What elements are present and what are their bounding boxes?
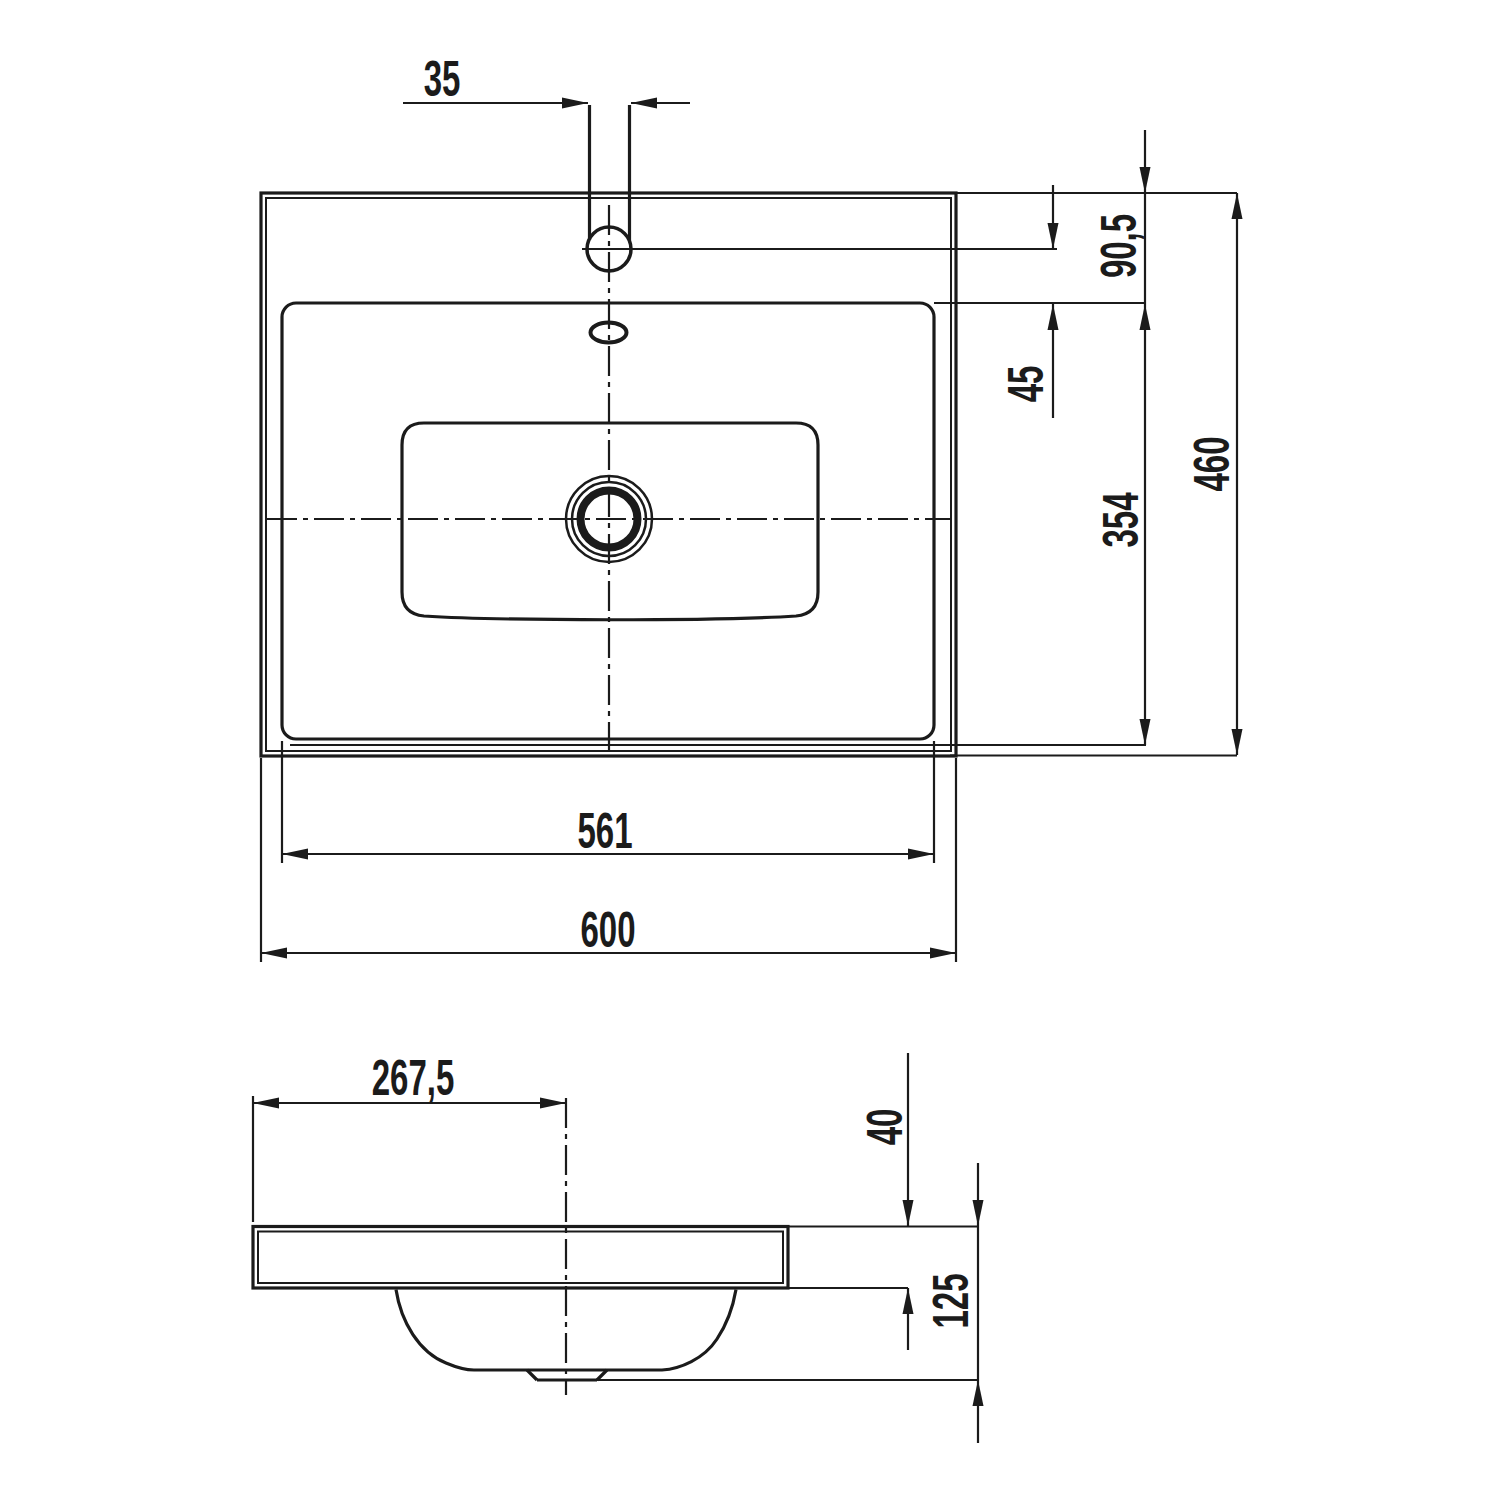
dim-label-edge-to-basin: 90,5 xyxy=(1091,214,1146,278)
slab-inner-outline xyxy=(258,1232,783,1284)
arrow-up-icon xyxy=(1232,193,1243,219)
dimension-90-5-and-354: 90,5 354 xyxy=(1091,130,1151,745)
dim-label-basin-width: 561 xyxy=(577,803,632,858)
arrow-right-icon xyxy=(562,98,588,109)
arrow-left-icon xyxy=(261,948,287,959)
washbasin-technical-drawing: 35 45 90,5 354 460 561 600 xyxy=(0,0,1500,1500)
arrow-up-icon xyxy=(1048,304,1059,330)
drawing-canvas: 35 45 90,5 354 460 561 600 xyxy=(0,0,1500,1500)
dimension-40: 40 xyxy=(857,1053,914,1350)
arrow-right-icon xyxy=(540,1098,566,1109)
dimension-35: 35 xyxy=(403,51,690,109)
dim-label-overall-width: 600 xyxy=(580,902,635,957)
arrow-down-icon xyxy=(903,1200,914,1226)
dim-label-basin-depth: 354 xyxy=(1093,492,1148,547)
dim-label-overall-depth: 460 xyxy=(1184,436,1239,491)
dimension-460: 460 xyxy=(1184,193,1243,755)
arrow-down-icon xyxy=(1232,729,1243,755)
arrow-down-icon xyxy=(973,1200,984,1226)
arrow-up-icon xyxy=(903,1288,914,1314)
slab-outer-outline xyxy=(253,1227,788,1289)
dim-label-bowl-depth: 125 xyxy=(923,1273,978,1328)
arrow-left-icon xyxy=(282,849,308,860)
dimension-600: 600 xyxy=(261,758,956,962)
arrow-down-icon xyxy=(1048,223,1059,249)
arrow-up-icon xyxy=(1140,304,1151,330)
arrow-down-icon xyxy=(1140,719,1151,745)
arrow-left-icon xyxy=(253,1098,279,1109)
arrow-down-icon xyxy=(1140,167,1151,193)
dimension-267-5: 267,5 xyxy=(253,1050,566,1109)
dim-label-faucet-to-basin: 45 xyxy=(998,366,1053,403)
top-view xyxy=(261,105,1237,757)
arrow-right-icon xyxy=(930,948,956,959)
dimension-125: 125 xyxy=(923,1163,984,1443)
arrow-left-icon xyxy=(631,98,657,109)
arrow-right-icon xyxy=(908,849,934,860)
dimension-45: 45 xyxy=(998,185,1059,418)
dim-label-faucet-hole: 35 xyxy=(424,51,461,106)
faucet-hole-icon xyxy=(587,105,631,271)
dim-label-drain-offset: 267,5 xyxy=(372,1050,455,1105)
dimension-561: 561 xyxy=(282,741,934,863)
dim-label-rim-thickness: 40 xyxy=(857,1109,912,1146)
arrow-up-icon xyxy=(973,1380,984,1406)
